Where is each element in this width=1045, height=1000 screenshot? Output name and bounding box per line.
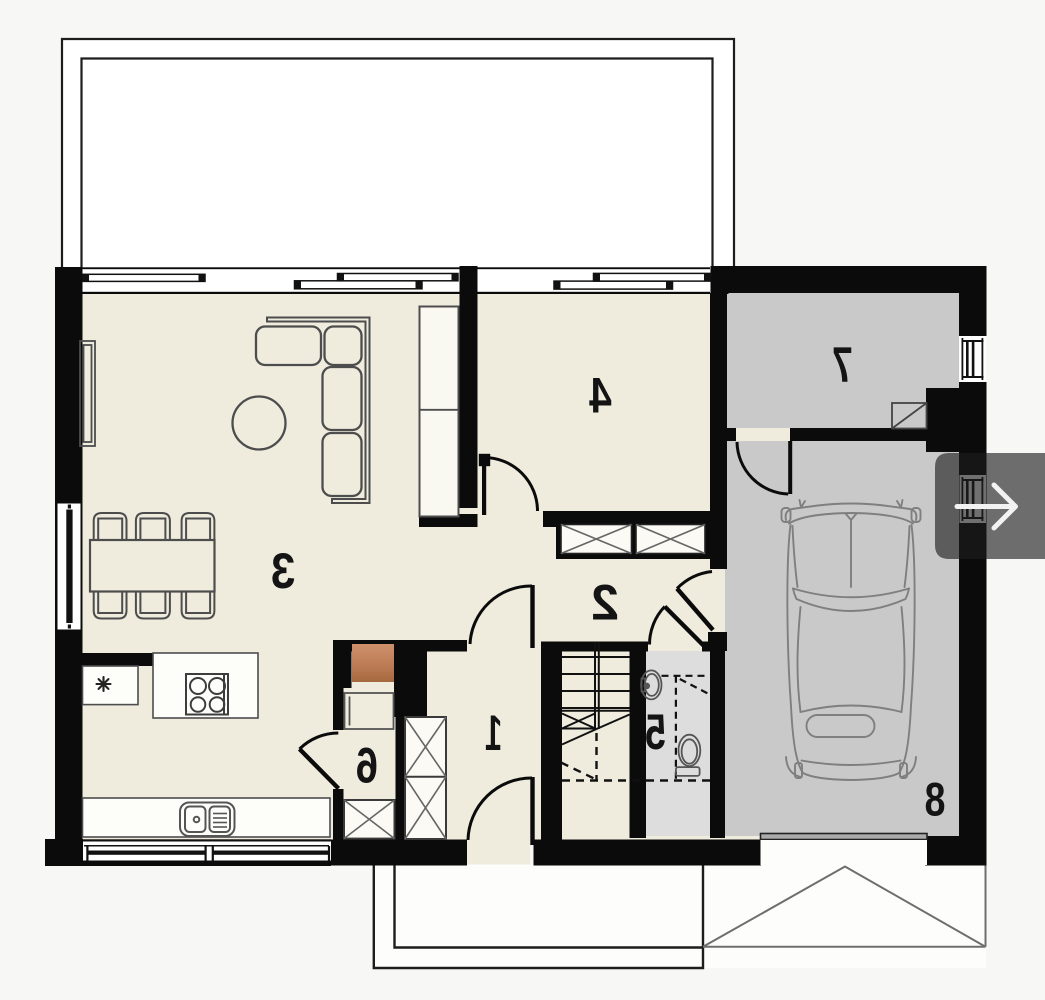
svg-text:2: 2 (591, 575, 619, 631)
svg-text:3: 3 (271, 542, 295, 598)
svg-text:5: 5 (645, 705, 666, 760)
svg-text:8: 8 (925, 774, 946, 827)
svg-text:1: 1 (485, 704, 502, 760)
svg-text:4: 4 (589, 368, 612, 424)
svg-text:6: 6 (356, 737, 378, 793)
svg-text:7: 7 (832, 338, 853, 393)
